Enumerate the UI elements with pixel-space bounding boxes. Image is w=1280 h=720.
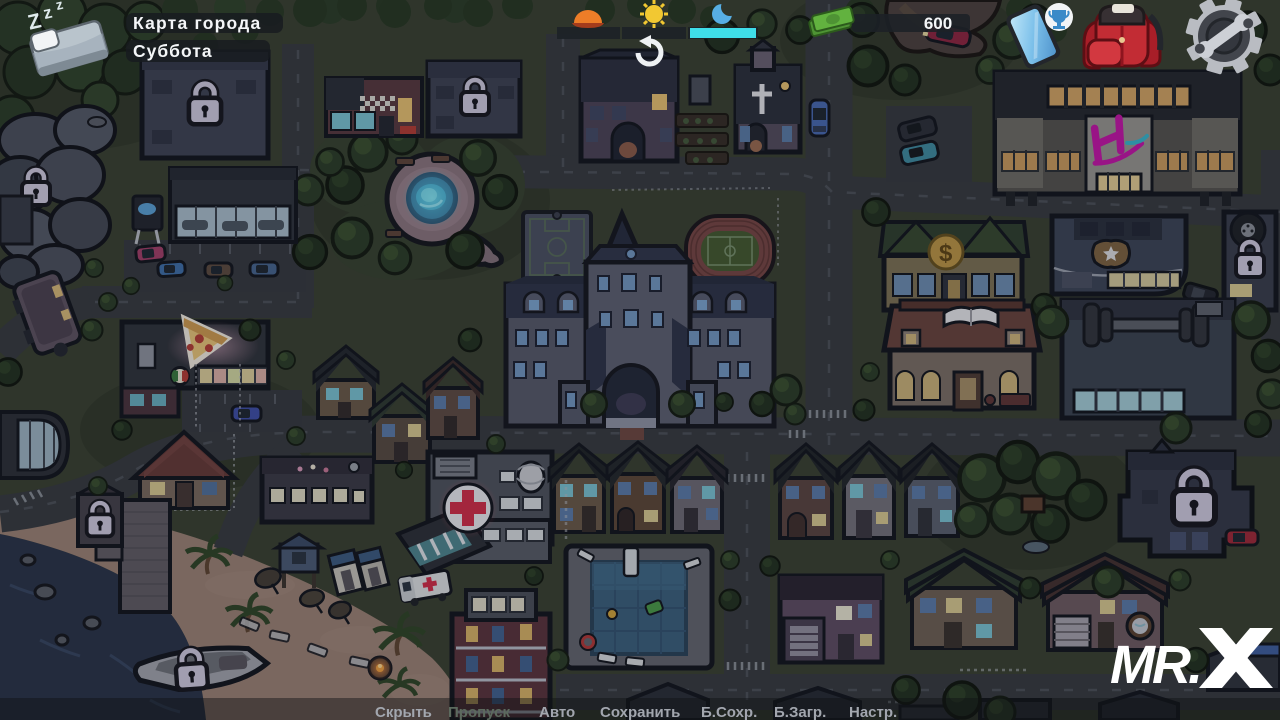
- svg-text:Сохранить: Сохранить: [600, 704, 680, 720]
- svg-text:Настр.: Настр.: [849, 704, 897, 720]
- svg-text:Авто: Авто: [539, 704, 575, 720]
- svg-text:Б.Сохр.: Б.Сохр.: [701, 704, 757, 720]
- svg-text:Карта города: Карта города: [133, 13, 261, 33]
- svg-text:Б.Загр.: Б.Загр.: [774, 704, 826, 720]
- svg-text:Скрыть: Скрыть: [375, 704, 432, 720]
- svg-text:Пропуск: Пропуск: [448, 704, 510, 720]
- svg-text:Суббота: Суббота: [133, 41, 213, 61]
- svg-text:600: 600: [924, 14, 952, 33]
- svg-text:MR.: MR.: [1110, 635, 1200, 695]
